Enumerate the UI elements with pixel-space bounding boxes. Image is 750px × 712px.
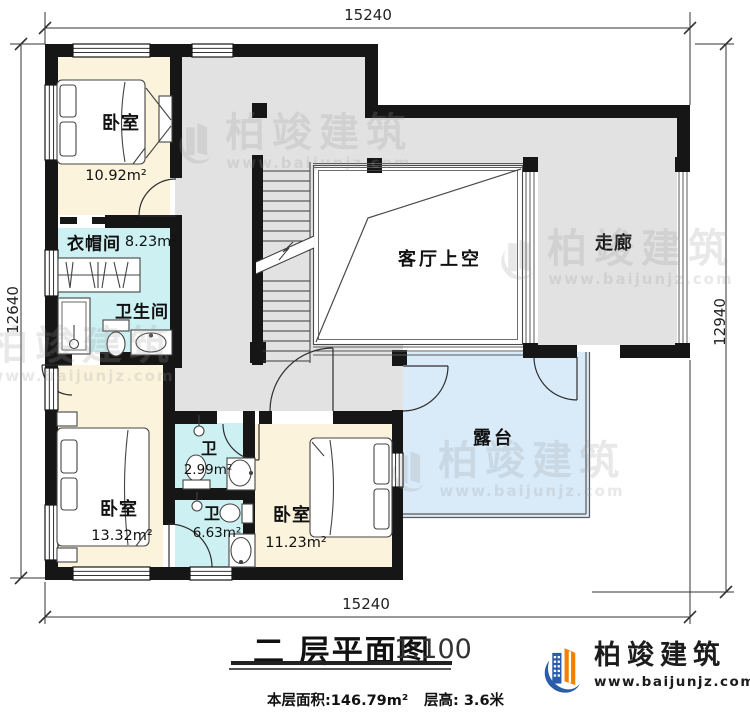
label-bedroom3: 卧室: [273, 501, 311, 527]
wall-bath-bedroom2-a: [45, 352, 72, 365]
wall-left: [45, 44, 58, 580]
wall-cloak-top-a: [45, 215, 58, 228]
label-corridor: 走廊: [595, 229, 633, 255]
wall-wc-mid: [163, 488, 255, 500]
brand-url: www.baijunjz.com: [594, 674, 750, 690]
dim-label-left: 12640: [4, 286, 22, 334]
wall-top-right: [365, 105, 690, 118]
floor-area-text: 本层面积:146.79m²: [267, 689, 408, 710]
area-bedroom3: 11.23m²: [265, 535, 326, 551]
column: [523, 157, 538, 172]
area-wc2: 6.63m²: [193, 525, 242, 541]
label-bedroom2: 卧室: [100, 495, 138, 521]
wall-cloak-top-b: [105, 215, 182, 228]
brand-logo-icon: [540, 641, 586, 697]
area-cloakroom: 8.23m²: [125, 234, 177, 250]
label-wc1: 卫: [201, 435, 217, 459]
label-wc2: 卫: [204, 500, 220, 524]
hall-lower: [313, 345, 403, 411]
label-terrace: 露台: [473, 424, 515, 450]
room-bedroom1: [57, 57, 170, 215]
label-void: 客厅上空: [398, 245, 482, 271]
dim-label-top: 15240: [344, 6, 392, 24]
label-cloakroom: 衣帽间: [67, 230, 121, 255]
wall-stair: [252, 155, 263, 365]
column: [252, 103, 267, 118]
label-bedroom1: 卧室: [102, 109, 140, 135]
wall-top-left: [45, 44, 378, 57]
wall-wc-right: [243, 411, 255, 580]
wall-hall-bottom-b: [259, 411, 272, 424]
column: [392, 350, 407, 365]
wall-hall-bottom-a: [170, 411, 217, 424]
wall-bottom: [45, 567, 403, 580]
area-wc1: 2.99m²: [184, 462, 233, 478]
dim-label-bottom: 15240: [342, 595, 390, 613]
column: [367, 158, 382, 173]
column: [523, 343, 538, 358]
floor-height-text: 层高: 3.6米: [424, 689, 504, 710]
column-stair-end: [250, 342, 266, 363]
column: [675, 157, 690, 172]
column: [675, 343, 690, 358]
brand-name: 柏竣建筑: [594, 641, 750, 671]
area-bedroom1: 10.92m²: [85, 168, 146, 184]
wall-bedroom1-right-a: [170, 44, 182, 178]
brand-logo: 柏竣建筑 www.baijunjz.com: [540, 641, 750, 697]
wall-bedroom3-right-b: [392, 410, 403, 580]
floor-plan-canvas: 卧室 10.92m² 衣帽间 8.23m² 卫生间 客厅上空 走廊 卧室 13.…: [0, 0, 750, 712]
title-underline-thick: [231, 661, 452, 665]
room-corridor: [538, 165, 677, 345]
label-bathroom: 卫生间: [115, 298, 169, 323]
cloak-opening-dashes: [60, 217, 108, 224]
area-bedroom2: 13.32m²: [91, 528, 152, 544]
title-underline-thin: [229, 668, 451, 670]
dim-label-right: 12940: [711, 298, 729, 346]
hall-left: [175, 57, 313, 411]
